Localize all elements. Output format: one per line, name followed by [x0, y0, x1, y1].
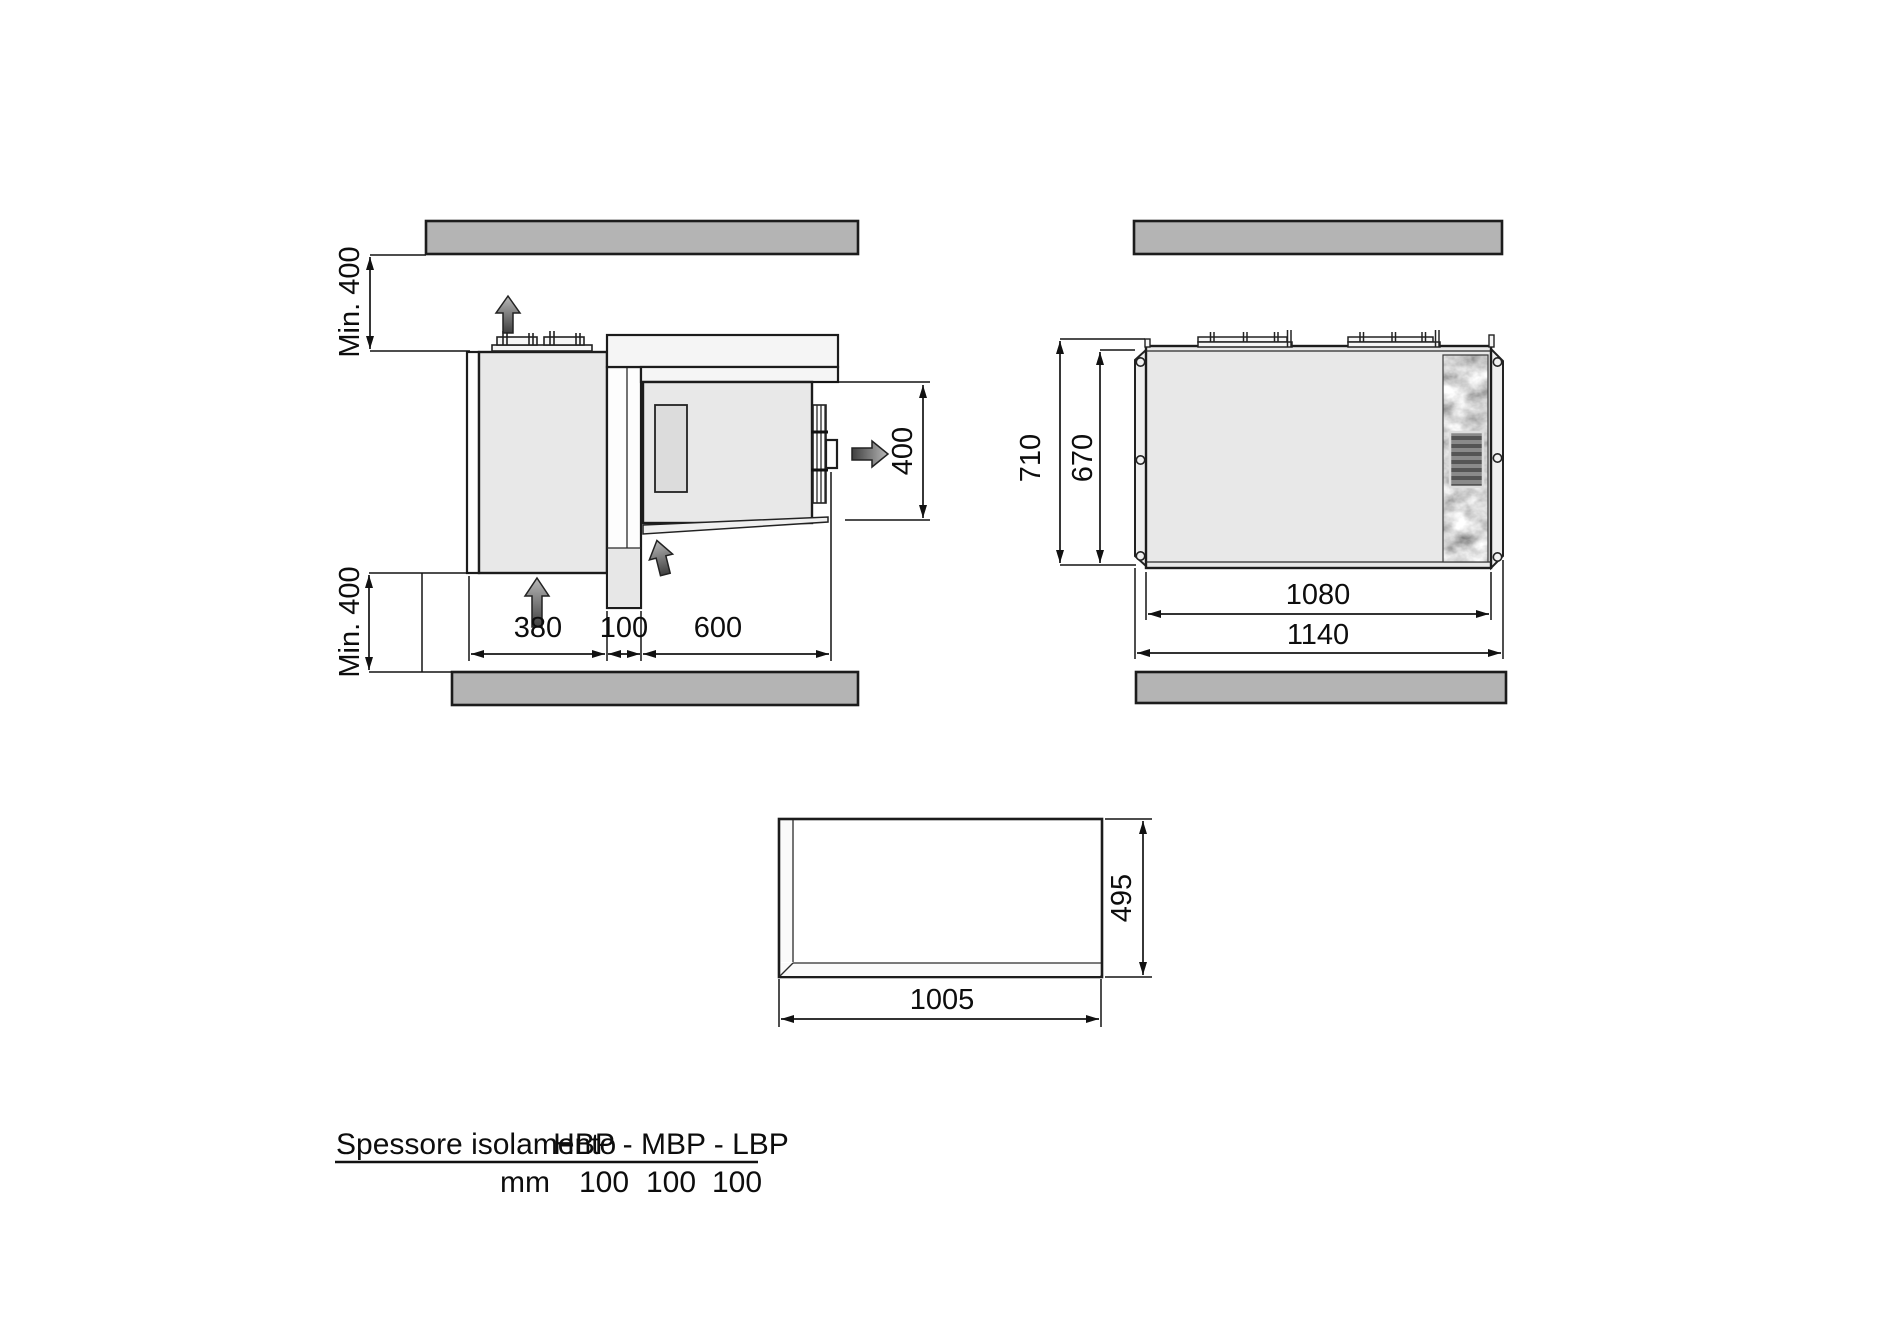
dim-opening-width: 1005 [779, 979, 1101, 1027]
dim-label-1080: 1080 [1286, 579, 1351, 611]
ceiling-panel-inner [641, 367, 838, 382]
insulation-table: Spessore isolamento HBP - MBP - LBP mm 1… [335, 1128, 789, 1199]
obstacle-bar-bottom-right [1136, 672, 1506, 703]
ceiling-panel-outer [607, 335, 838, 367]
airflow-arrow-up-icon [496, 296, 520, 333]
opening-outline [779, 819, 1102, 977]
obstacle-bar-bottom-left [452, 672, 858, 705]
hinge-brackets-left-view [492, 331, 592, 351]
table-value-mbp: 100 [646, 1166, 696, 1199]
dim-label-400: 400 [887, 427, 919, 475]
dim-label-min-top: Min. 400 [334, 246, 366, 357]
table-value-lbp: 100 [712, 1166, 762, 1199]
rear-tab [826, 440, 837, 468]
table-col-header: HBP - MBP - LBP [553, 1128, 789, 1161]
obstacle-bar-top-right [1134, 221, 1502, 254]
corner-tab-right [1489, 335, 1494, 347]
table-value-hbp: 100 [579, 1166, 629, 1199]
dim-min-clearance-top: Min. 400 [334, 246, 470, 357]
dim-label-1005: 1005 [910, 984, 975, 1016]
obstacle-bar-top-left [426, 221, 858, 254]
right-view-unit-front: 710 670 1080 1140 [1015, 221, 1506, 703]
mounting-bracket-group-2 [1348, 330, 1440, 347]
unit-body [1146, 346, 1491, 568]
evaporator-access-panel [655, 405, 687, 492]
rating-label [1450, 432, 1483, 487]
condenser-box [479, 352, 607, 573]
technical-drawing-page: Min. 400 Min. 400 380 100 600 [0, 0, 1890, 1336]
airflow-arrow-diagonal-icon [645, 538, 677, 578]
dim-body-width: 1080 [1146, 572, 1491, 620]
corner-tab-left [1145, 339, 1150, 347]
left-view-wall-section: Min. 400 Min. 400 380 100 600 [334, 221, 930, 705]
drawing-canvas: Min. 400 Min. 400 380 100 600 [0, 0, 1890, 1336]
condenser-coil-texture [1443, 355, 1488, 562]
dim-body-height: 670 [1067, 350, 1135, 563]
cold-room-wall [607, 367, 641, 608]
dim-label-600: 600 [694, 612, 742, 644]
dim-opening-height: 495 [1105, 819, 1152, 977]
dim-label-1140: 1140 [1287, 619, 1349, 651]
dim-label-495: 495 [1106, 874, 1138, 922]
dim-label-380: 380 [514, 612, 562, 644]
opening-view: 495 1005 [779, 819, 1152, 1027]
airflow-arrow-right-icon [852, 441, 888, 467]
table-unit-label: mm [500, 1166, 550, 1199]
dim-label-710: 710 [1015, 434, 1047, 482]
dim-label-670: 670 [1067, 434, 1099, 482]
condenser-outer-flange [467, 352, 479, 573]
dim-label-min-bottom: Min. 400 [334, 566, 366, 677]
mounting-bracket-group-1 [1198, 330, 1292, 347]
dim-min-clearance-bottom: Min. 400 [334, 566, 469, 677]
dim-label-100: 100 [600, 612, 648, 644]
